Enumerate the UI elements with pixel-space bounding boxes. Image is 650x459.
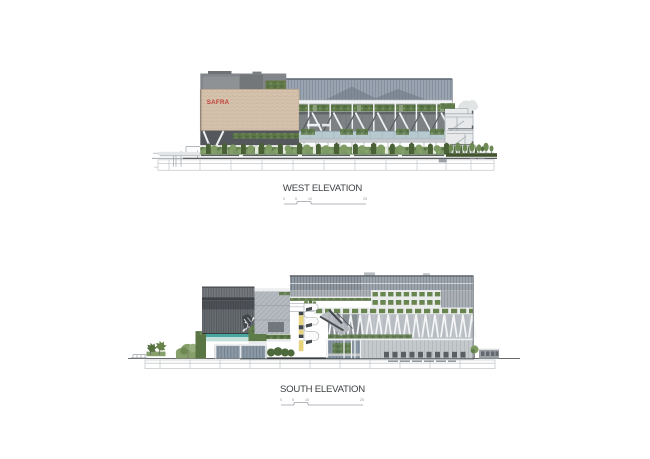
svg-text:0: 0 <box>283 197 285 201</box>
svg-text:SAFRA: SAFRA <box>207 99 230 106</box>
svg-text:5: 5 <box>295 197 297 201</box>
svg-text:25: 25 <box>363 197 367 201</box>
svg-text:SOUTH ELEVATION: SOUTH ELEVATION <box>280 384 365 395</box>
svg-text:5: 5 <box>292 398 294 402</box>
svg-text:10: 10 <box>305 398 309 402</box>
svg-text:0: 0 <box>280 398 282 402</box>
svg-text:WEST ELEVATION: WEST ELEVATION <box>283 183 362 194</box>
svg-text:25: 25 <box>360 398 364 402</box>
svg-text:10: 10 <box>308 197 312 201</box>
